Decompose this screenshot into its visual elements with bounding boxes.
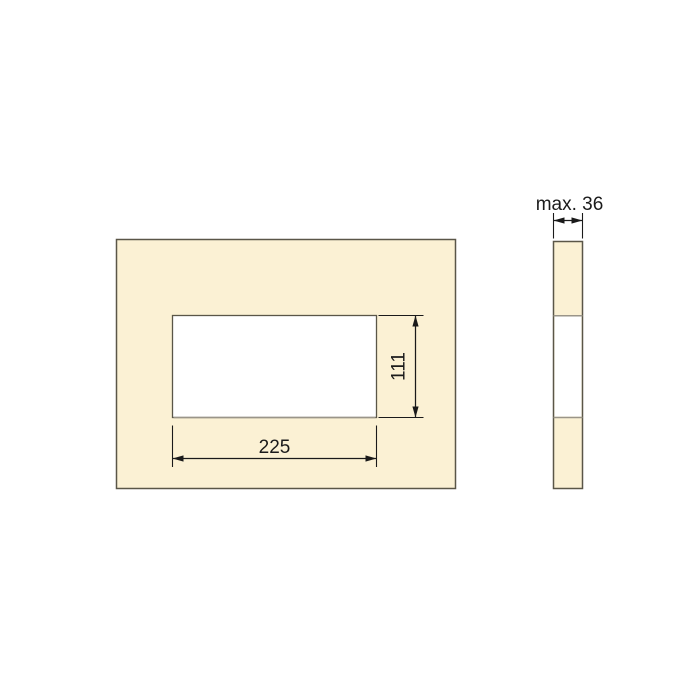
side-view bbox=[554, 242, 583, 489]
dimension-thickness: max. 36 bbox=[536, 194, 604, 239]
page: 111 225 max. 36 bbox=[0, 0, 700, 700]
dimension-width-label: 225 bbox=[259, 437, 291, 458]
technical-drawing: 111 225 max. 36 bbox=[0, 0, 700, 700]
side-cutout-band bbox=[555, 317, 582, 417]
dimension-thickness-label: max. 36 bbox=[536, 194, 604, 215]
cutout-opening bbox=[173, 316, 377, 418]
dimension-height-label: 111 bbox=[389, 352, 410, 381]
